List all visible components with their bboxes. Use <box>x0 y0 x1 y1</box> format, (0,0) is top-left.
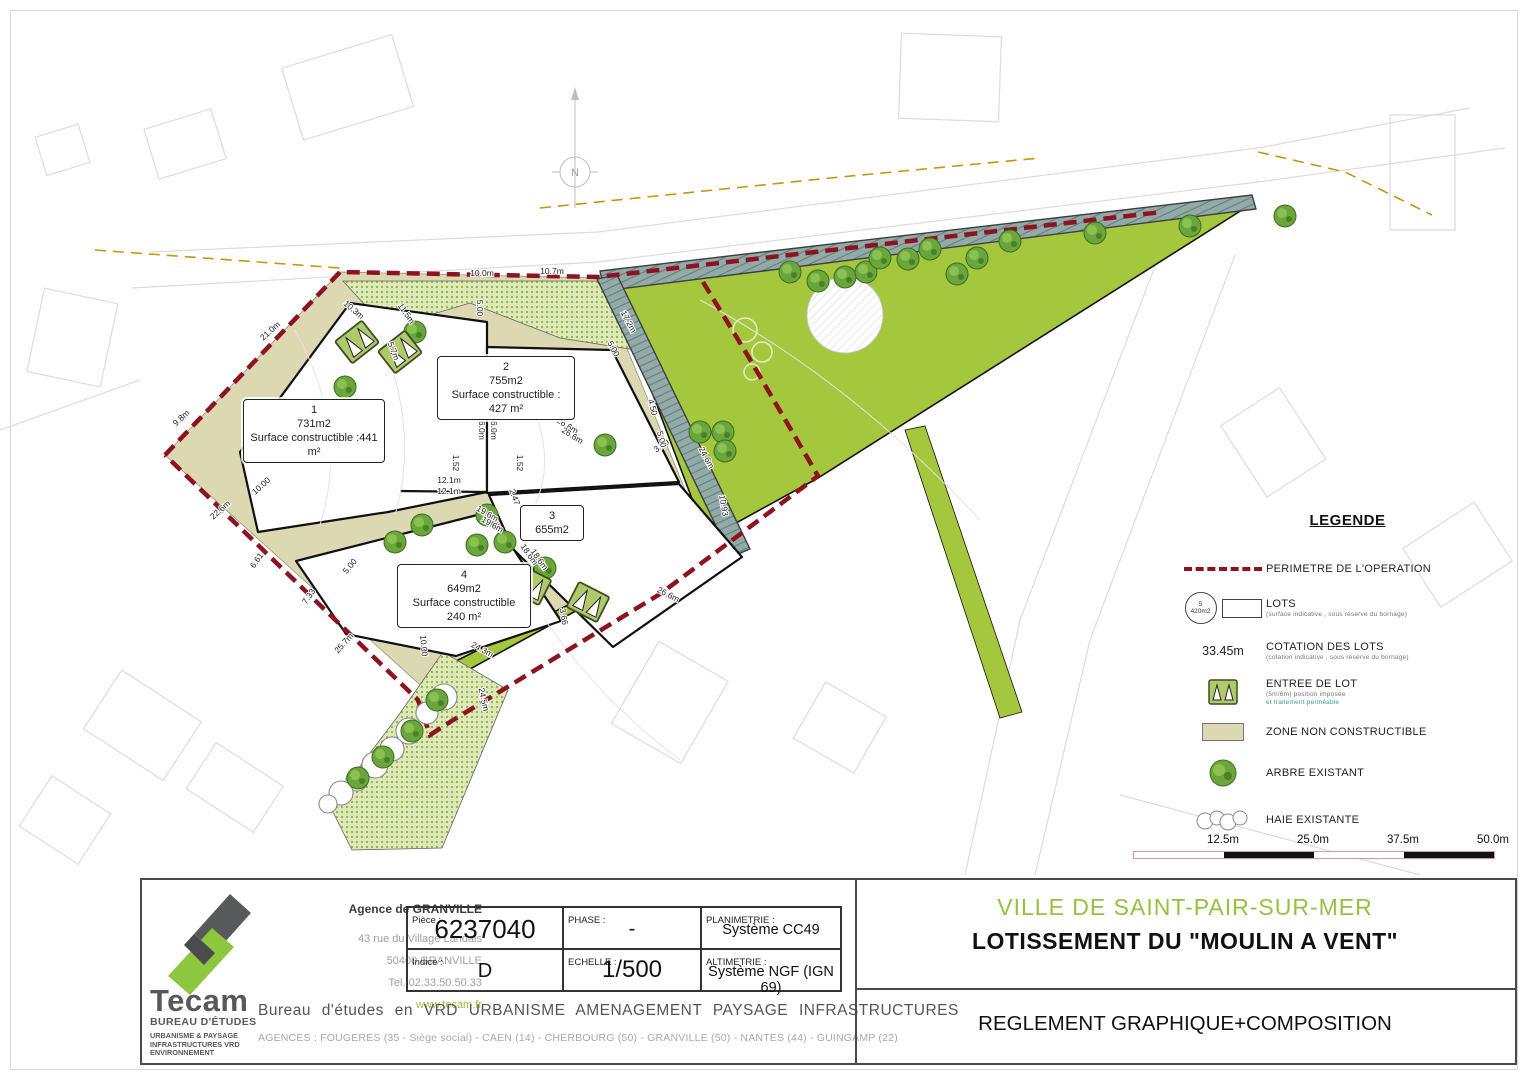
tree-icon <box>946 263 968 285</box>
lot-circle-number: 5 <box>1199 601 1203 608</box>
titleblock-hdivider <box>855 988 1515 990</box>
scale-label: 25.0m <box>1297 834 1329 846</box>
company-subtitle: BUREAU D'ÉTUDES <box>150 1016 270 1028</box>
dimension-label: 1.52 <box>451 455 461 472</box>
company-tag: ENVIRONNEMENT <box>150 1049 270 1058</box>
lot-area: 731m2 <box>248 417 380 431</box>
tree-icon <box>372 746 394 768</box>
tree-icon <box>1274 205 1296 227</box>
scale-label: 37.5m <box>1387 834 1419 846</box>
scale-bar: 12.5m 25.0m 37.5m 50.0m <box>1128 834 1508 864</box>
tree-icon <box>494 531 516 553</box>
legend: LEGENDE PERIMETRE DE L'OPERATION 5 420m2… <box>1180 512 1515 852</box>
tree-icon <box>966 247 988 269</box>
zone-swatch-icon <box>1202 723 1244 741</box>
dimension-label: 1.52 <box>515 455 525 472</box>
drawing-info-table: Pièce : 6237040 PHASE : - PLANIMETRIE : … <box>406 906 842 992</box>
tree-icon <box>411 514 433 536</box>
legend-sublabel: (cotation indicative , sous réserve du b… <box>1266 654 1409 661</box>
legend-label: HAIE EXISTANTE <box>1266 814 1359 826</box>
title-block: Tecam BUREAU D'ÉTUDES URBANISME & PAYSAG… <box>140 878 1517 1065</box>
legend-label: COTATION DES LOTS <box>1266 641 1409 653</box>
document-title: REGLEMENT GRAPHIQUE+COMPOSITION <box>855 1012 1515 1036</box>
dimension-label: 6.61 <box>248 550 266 570</box>
lot-label-4: 4 649m2 Surface constructible 240 m² <box>397 564 531 628</box>
hedge-bubble <box>319 795 337 813</box>
lot-number: 4 <box>402 568 526 582</box>
dimension-label: 10.00 <box>418 635 430 657</box>
tree-icon <box>999 230 1021 252</box>
dimension-label: 12.1m <box>437 486 461 496</box>
lot-label-3: 3 655m2 <box>520 505 584 541</box>
dimension-label: 10.7m <box>540 266 564 276</box>
legend-item-lots: 5 420m2 LOTS (surface indicative , sous … <box>1180 592 1515 624</box>
dimension-label: 25.7m <box>332 631 355 655</box>
tree-icon <box>1084 222 1106 244</box>
lot-surface: Surface constructible : 427 m² <box>442 388 570 416</box>
tree-icon <box>807 270 829 292</box>
legend-item-entree: ENTREE DE LOT (5m/6m) position imposée e… <box>1180 678 1515 706</box>
lot-label-1: 1 731m2 Surface constructible :441 m² <box>243 399 385 463</box>
tree-icon <box>1179 215 1201 237</box>
tree-icon <box>1208 758 1238 788</box>
tree-icon <box>401 720 423 742</box>
legend-title: LEGENDE <box>1180 512 1515 529</box>
legend-sublabel: (surface indicative , sous réserve du bo… <box>1266 611 1407 618</box>
planimetrie-value: Système CC49 <box>702 922 840 938</box>
lot-circle-area: 420m2 <box>1191 608 1211 615</box>
legend-item-perimetre: PERIMETRE DE L'OPERATION <box>1180 563 1515 575</box>
tecam-logo <box>158 890 258 995</box>
legend-label: ARBRE EXISTANT <box>1266 767 1364 779</box>
dimension-label: 5.00 <box>475 300 485 317</box>
dimension-label: 12.1m <box>437 475 461 485</box>
dimension-label: 3.66 <box>558 607 571 625</box>
lot-number: 2 <box>442 360 570 374</box>
tree-icon <box>834 266 856 288</box>
perimeter-dash-icon <box>1184 567 1262 571</box>
tree-icon <box>919 238 941 260</box>
legend-label: ENTREE DE LOT <box>1266 678 1357 690</box>
legend-label: ZONE NON CONSTRUCTIBLE <box>1266 726 1427 738</box>
project-title: LOTISSEMENT DU "MOULIN A VENT" <box>855 928 1515 955</box>
tree-icon <box>779 261 801 283</box>
dimension-label: 10.0m <box>470 268 494 278</box>
lot-area: 649m2 <box>402 582 526 596</box>
lot-number: 1 <box>248 403 380 417</box>
drawing-sheet: N 21.0m9.8m10.3m11.5m5.7m10.0m10. <box>0 0 1528 1080</box>
lot-rect-icon <box>1222 599 1262 618</box>
tree-icon <box>426 689 448 711</box>
legend-sublabel: (5m/6m) position imposée <box>1266 691 1357 698</box>
legend-sublabel: et traitement perméable <box>1266 699 1357 706</box>
legend-label: PERIMETRE DE L'OPERATION <box>1266 563 1431 575</box>
north-arrow: N <box>552 87 598 208</box>
tree-icon <box>897 248 919 270</box>
lot-area: 755m2 <box>442 374 570 388</box>
tree-icon <box>347 767 369 789</box>
lot-surface: Surface constructible :441 m² <box>248 431 380 459</box>
tree-icon <box>334 376 356 398</box>
bureau-line: Bureau d'études en VRD URBANISME AMENAGE… <box>258 1002 959 1020</box>
agences-line: AGENCES : FOUGERES (35 - Siège social) -… <box>258 1032 898 1044</box>
dimension-label: 9.8m <box>171 408 192 428</box>
piece-value: 6237040 <box>408 914 562 945</box>
echelle-value: 1/500 <box>564 956 700 984</box>
lot-entry-icon <box>1208 679 1238 705</box>
legend-item-zone: ZONE NON CONSTRUCTIBLE <box>1180 723 1515 741</box>
scale-label: 50.0m <box>1477 834 1509 846</box>
legend-item-haie: HAIE EXISTANTE <box>1180 805 1515 835</box>
altimetrie-value: Système NGF (IGN 69) <box>702 964 840 996</box>
tree-icon <box>869 247 891 269</box>
legend-item-arbre: ARBRE EXISTANT <box>1180 758 1515 788</box>
indice-value: D <box>408 960 562 983</box>
tree-icon <box>714 440 736 462</box>
legend-label: LOTS <box>1266 598 1407 610</box>
tree-icon <box>466 534 488 556</box>
tree-icon <box>689 421 711 443</box>
north-letter: N <box>571 167 579 179</box>
lot-circle-icon: 5 420m2 <box>1185 592 1217 624</box>
cotation-sample: 33.45m <box>1180 644 1266 658</box>
lot-surface: Surface constructible 240 m² <box>402 596 526 624</box>
hedge-icon <box>1195 805 1251 835</box>
phase-value: - <box>564 918 700 941</box>
scale-label: 12.5m <box>1207 834 1239 846</box>
legend-item-cotation: 33.45m COTATION DES LOTS (cotation indic… <box>1180 641 1515 661</box>
tree-icon <box>384 531 406 553</box>
city-title: VILLE DE SAINT-PAIR-SUR-MER <box>855 894 1515 921</box>
scale-bar-track <box>1133 851 1495 859</box>
lot-number: 3 <box>525 509 579 523</box>
tree-icon <box>594 434 616 456</box>
lot-area: 655m2 <box>525 523 579 537</box>
lot-label-2: 2 755m2 Surface constructible : 427 m² <box>437 356 575 420</box>
